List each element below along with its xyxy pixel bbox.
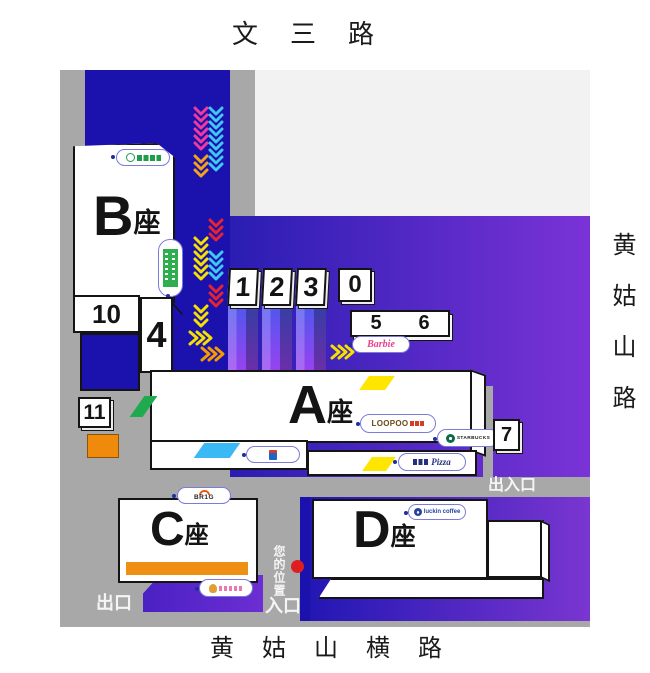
illegible-pink-script (219, 586, 243, 591)
green-brand-icon (126, 153, 135, 162)
gate-1: 1 (227, 268, 259, 306)
brand-pill-barbie: Barbie (352, 336, 410, 353)
loopoo-logo-text: LOOPOO (372, 419, 409, 428)
gate-7-label: 7 (501, 424, 512, 447)
brand-pill-luckin: luckin coffee (408, 504, 466, 520)
starbucks-logo-text: STARBUCKS (457, 436, 490, 441)
gate-10-label: 10 (92, 299, 121, 330)
brig-dot (172, 494, 176, 498)
b-blue-annex (80, 333, 140, 391)
gate-7: 7 (493, 419, 520, 451)
gate-11-label: 11 (83, 401, 105, 425)
luckin-logo-text: luckin coffee (424, 509, 461, 515)
c-orange-stripe (126, 562, 248, 575)
entrance-label: 入口 (265, 597, 301, 615)
brand-pill-loopoo: LOOPOO (360, 414, 436, 433)
blue-square-logo (269, 450, 277, 460)
pizza-logo-text: Pizza (431, 457, 451, 467)
building-c-letter: C (150, 506, 185, 554)
building-d-wing (487, 520, 544, 578)
map-area: B 座 10 4 1 2 3 0 5 (60, 70, 590, 627)
gate-2-label: 2 (269, 272, 286, 303)
gate-0-label: 0 (348, 271, 361, 299)
building-b-label: B 座 (93, 188, 160, 244)
you-are-here-red-dot (291, 560, 304, 573)
street-right: 黄姑山路 (604, 232, 639, 436)
gate-10: 10 (73, 295, 140, 333)
illegible-script-word (413, 459, 429, 465)
brig-logo-text: BR1G (194, 494, 214, 501)
brand-pill-mini (246, 446, 300, 463)
gold-mascot-icon (209, 584, 217, 593)
starbucks-siren-icon (446, 434, 455, 443)
building-c-suffix: 座 (185, 524, 209, 548)
building-d-side-facet (540, 520, 550, 583)
street-bottom: 黄姑山横路 (210, 628, 470, 663)
gate-6-label: 6 (418, 312, 429, 335)
canopy-column-1 (228, 303, 258, 379)
green-vertical-logo (163, 249, 178, 287)
canopy-column-3 (296, 303, 326, 379)
gate-0: 0 (338, 268, 372, 302)
b-brand-dot (111, 155, 115, 159)
building-b-letter: B (93, 188, 133, 244)
canopy-column-2 (262, 303, 292, 379)
light-gray-area (255, 70, 590, 216)
pizza-dot (393, 460, 397, 464)
brand-pill-b-top (116, 149, 170, 166)
brand-pill-c-bottom (199, 579, 253, 597)
building-b-suffix: 座 (133, 210, 160, 237)
exit-entrance-label: 出入口 (488, 478, 536, 494)
building-d-ledge (318, 578, 544, 599)
brand-pill-starbucks: STARBUCKS (437, 429, 499, 447)
building-c-label: C 座 (150, 506, 209, 554)
gate-3: 3 (295, 268, 327, 306)
gate-2: 2 (261, 268, 293, 306)
barbie-logo-text: Barbie (367, 339, 395, 350)
building-a-letter: A (288, 378, 327, 432)
gate-4-label: 4 (146, 314, 166, 356)
gate-1-label: 1 (235, 272, 252, 303)
orange-kiosk (87, 434, 119, 458)
gate-11: 11 (78, 397, 111, 428)
vertical-shop-badge (158, 239, 183, 297)
you-are-here-label: 您的位置 (273, 545, 285, 597)
mall-map-page: 文三路 黄姑山路 黄姑山横路 B 座 10 (0, 0, 650, 673)
building-d-suffix: 座 (391, 525, 416, 550)
gate-5-6-bar: 5 6 (350, 310, 450, 337)
brand-pill-brig: BR1G (177, 487, 231, 504)
building-d-letter: D (353, 504, 391, 556)
gate-3-label: 3 (303, 272, 320, 303)
brand-pill-pizza: Pizza (398, 453, 466, 471)
gate-5-label: 5 (370, 312, 381, 335)
gate-4: 4 (140, 297, 173, 373)
building-a-label: A 座 (288, 378, 353, 432)
illegible-green-brand-text (137, 155, 161, 161)
street-top: 文三路 (232, 14, 406, 51)
building-a-suffix: 座 (327, 399, 353, 425)
exit-label: 出口 (96, 594, 132, 612)
luckin-deer-icon (414, 508, 422, 516)
illegible-red-suffix (410, 421, 424, 426)
